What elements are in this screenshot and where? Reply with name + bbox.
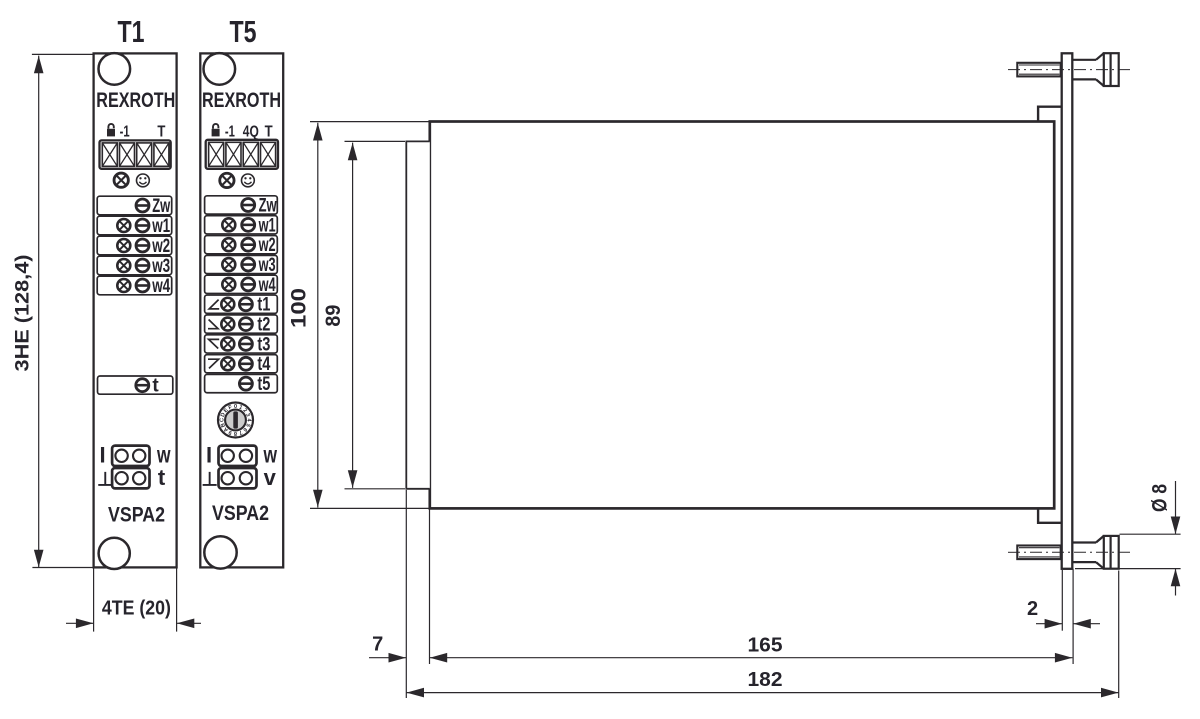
svg-text:t3: t3 xyxy=(257,334,270,355)
svg-text:3HE (128,4): 3HE (128,4) xyxy=(12,255,34,372)
svg-text:t4: t4 xyxy=(257,354,270,375)
svg-text:w4: w4 xyxy=(151,276,170,297)
svg-text:w2: w2 xyxy=(258,235,276,256)
svg-text:⊥: ⊥ xyxy=(201,470,218,491)
svg-text:-1: -1 xyxy=(225,124,235,141)
svg-text:165: 165 xyxy=(748,635,783,657)
svg-text:89: 89 xyxy=(322,305,345,327)
svg-text:w: w xyxy=(156,441,170,467)
svg-text:t5: t5 xyxy=(257,374,270,395)
svg-text:7: 7 xyxy=(372,634,383,656)
svg-text:T5: T5 xyxy=(230,14,257,49)
svg-text:2: 2 xyxy=(1027,598,1038,620)
svg-text:w4: w4 xyxy=(258,275,276,296)
svg-text:182: 182 xyxy=(748,669,783,691)
svg-text:REXROTH: REXROTH xyxy=(96,89,175,112)
svg-text:t: t xyxy=(152,376,159,397)
svg-text:T: T xyxy=(265,124,273,141)
svg-text:t2: t2 xyxy=(257,315,270,336)
svg-text:w3: w3 xyxy=(151,256,170,277)
svg-text:4TE (20): 4TE (20) xyxy=(102,598,171,620)
svg-text:4Q: 4Q xyxy=(243,124,259,141)
svg-text:Ø 8: Ø 8 xyxy=(1149,484,1172,512)
svg-text:I: I xyxy=(206,443,212,468)
svg-text:T1: T1 xyxy=(118,14,145,49)
svg-text:t: t xyxy=(158,465,166,490)
svg-text:100: 100 xyxy=(288,288,311,328)
svg-text:v: v xyxy=(264,465,277,490)
svg-text:w1: w1 xyxy=(151,216,170,237)
svg-text:Zw: Zw xyxy=(152,196,170,217)
svg-text:VSPA2: VSPA2 xyxy=(108,504,165,527)
svg-text:REXROTH: REXROTH xyxy=(202,89,281,112)
svg-text:w2: w2 xyxy=(151,236,170,257)
svg-text:w1: w1 xyxy=(258,215,276,236)
svg-text:w: w xyxy=(263,441,277,467)
svg-text:VSPA2: VSPA2 xyxy=(212,502,269,525)
svg-text:w3: w3 xyxy=(258,255,276,276)
svg-text:T: T xyxy=(157,124,165,141)
svg-text:t1: t1 xyxy=(257,295,270,316)
svg-text:I: I xyxy=(100,443,106,468)
svg-text:-1: -1 xyxy=(120,124,130,141)
svg-text:Zw: Zw xyxy=(259,195,277,216)
svg-text:⊥: ⊥ xyxy=(97,470,114,491)
